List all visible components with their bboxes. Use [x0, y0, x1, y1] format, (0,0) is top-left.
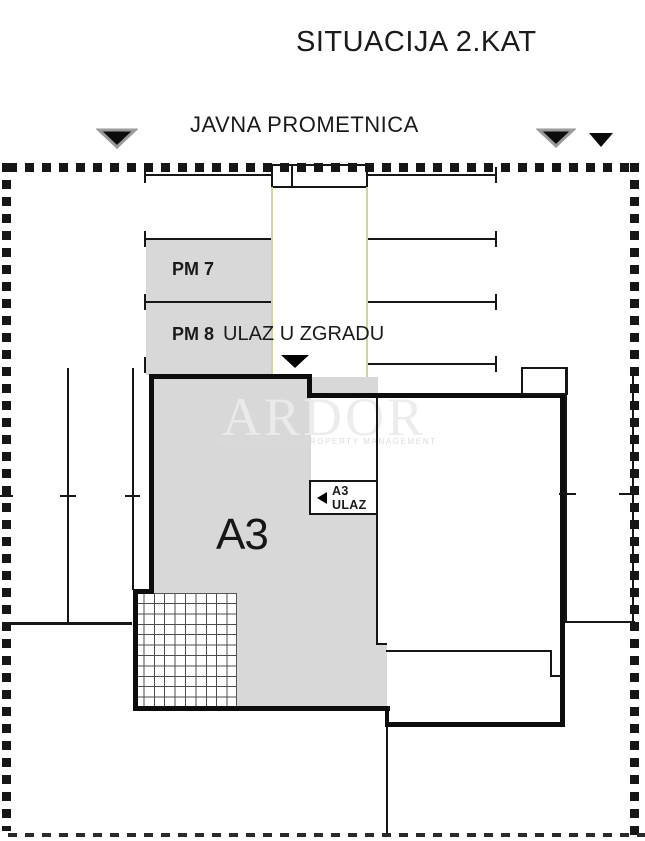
down-arrow-icon — [536, 126, 576, 149]
line-end-tick — [144, 231, 146, 247]
roof-step-outline — [521, 367, 568, 395]
situation-plan: SITUACIJA 2.KAT JAVNA PROMETNICA ARDOR R… — [0, 0, 645, 841]
parking-line — [367, 238, 497, 240]
site-boundary-line — [565, 621, 635, 623]
room-divider-line — [376, 397, 378, 645]
site-boundary-line — [6, 622, 132, 625]
dimension-tick — [60, 495, 76, 497]
line-end-tick — [495, 231, 497, 247]
path-line — [366, 187, 368, 395]
line-end-tick — [144, 357, 146, 373]
site-boundary-line — [386, 727, 388, 835]
room-divider-line — [376, 643, 387, 645]
line-end-tick — [495, 356, 497, 372]
apartment-a3-area-step — [378, 643, 387, 708]
terrace-edge-line — [550, 650, 552, 677]
property-boundary-top — [8, 163, 633, 172]
line-end-tick — [495, 294, 497, 310]
parking-line — [367, 363, 497, 365]
dimension-tick — [125, 495, 140, 497]
building-wall — [133, 706, 390, 711]
site-boundary-line — [132, 368, 134, 590]
parking-line — [367, 301, 497, 303]
pm7-label: PM 7 — [172, 259, 214, 280]
pm8-label: PM 8 — [172, 324, 214, 345]
pm8-entrance-row: PM 8 ULAZ U ZGRADU — [172, 323, 384, 346]
building-wall — [149, 374, 154, 593]
property-boundary-right — [630, 163, 639, 835]
down-arrow-icon — [96, 126, 138, 150]
parking-line — [145, 174, 272, 176]
property-boundary-bottom — [8, 833, 645, 837]
watermark-tagline: REAL ESTATE & PROPERTY MANAGEMENT — [218, 437, 426, 446]
road-label: JAVNA PROMETNICA — [190, 112, 419, 138]
line-end-tick — [144, 294, 146, 310]
site-boundary-line — [565, 369, 567, 623]
building-wall — [307, 374, 312, 398]
parking-line — [145, 301, 273, 303]
building-entrance-label: ULAZ U ZGRADU — [223, 323, 384, 346]
building-entrance-arrow-icon — [281, 355, 309, 368]
parking-line — [145, 238, 273, 240]
a3-entrance-arrow-icon — [317, 492, 327, 504]
parking-line — [367, 174, 497, 176]
terrace-edge-line — [550, 675, 562, 677]
building-wall — [149, 374, 312, 379]
path-line — [271, 187, 273, 375]
apartment-a3-label: A3 — [216, 510, 268, 560]
plan-title: SITUACIJA 2.KAT — [296, 26, 537, 59]
terrace-grid-area — [133, 593, 237, 708]
building-wall — [385, 722, 565, 727]
property-boundary-left — [2, 163, 11, 831]
a3-entrance-label: A3 ULAZ — [332, 484, 376, 512]
dimension-tick — [559, 493, 576, 495]
down-arrow-icon — [589, 133, 613, 147]
a3-entrance-label-box: A3 ULAZ — [309, 480, 378, 515]
terrace-edge-line — [386, 650, 552, 652]
building-wall — [133, 589, 138, 711]
